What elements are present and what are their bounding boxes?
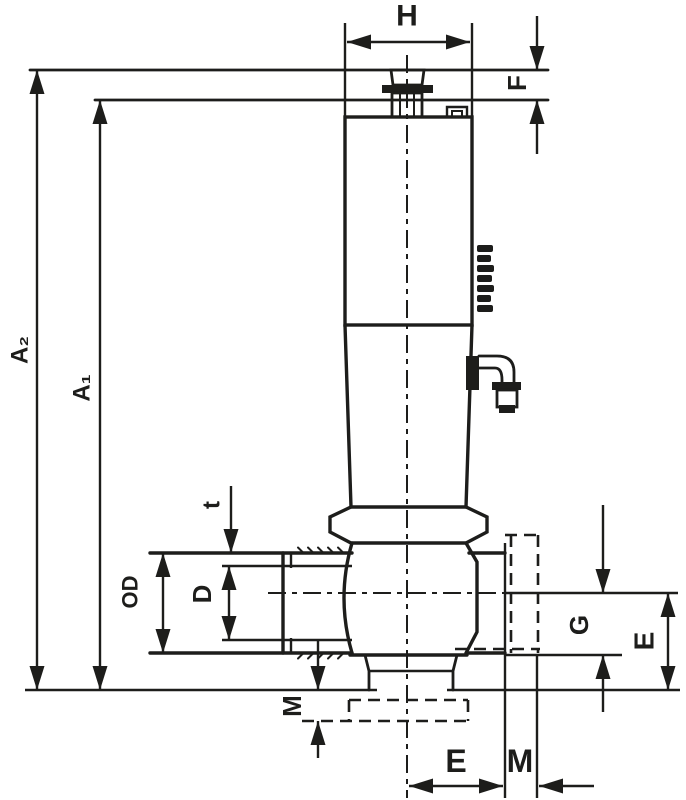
dim-label-F: F [502,75,532,91]
dim-label-H: H [396,0,418,33]
fitting-flange [466,356,479,390]
dim-label-t: t [199,501,226,509]
dim-label-G: G [564,615,594,635]
dim-label-E-bottom: E [445,743,466,779]
dim-label-A1: A₁ [69,374,96,401]
fitting-tip [499,405,515,413]
dim-label-E-right: E [629,632,660,651]
valve-technical-drawing: H F A₂ A₁ t OD D [0,0,686,800]
dim-label-M-left: M [277,695,307,717]
drawing-page: H F A₂ A₁ t OD D [0,0,686,800]
dim-label-A2: A₂ [7,336,34,364]
dim-label-OD: OD [118,576,143,609]
dim-label-M-bottom: M [507,743,534,779]
dim-label-D: D [187,585,217,604]
